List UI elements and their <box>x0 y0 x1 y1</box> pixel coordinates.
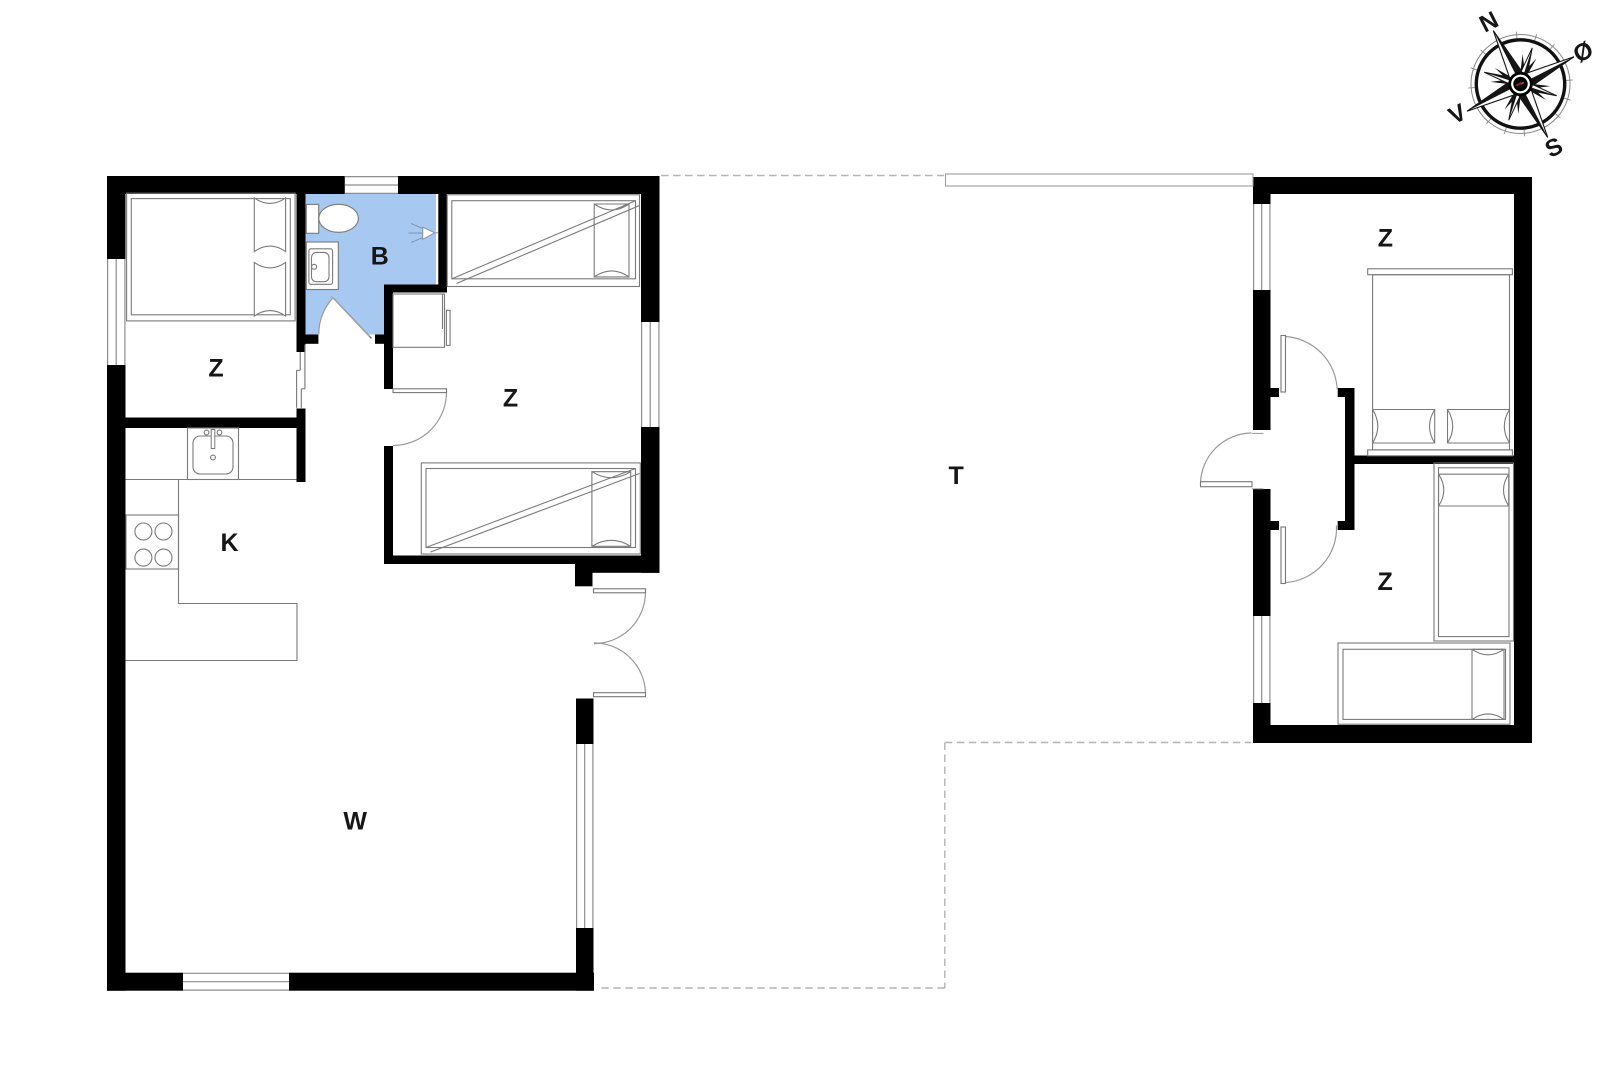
svg-text:K: K <box>220 529 238 557</box>
svg-text:Z: Z <box>1378 224 1393 252</box>
svg-text:W: W <box>343 808 367 836</box>
svg-text:B: B <box>371 243 389 271</box>
svg-text:T: T <box>949 462 964 490</box>
svg-text:Z: Z <box>1378 568 1393 596</box>
svg-text:Z: Z <box>503 385 518 413</box>
svg-text:Z: Z <box>208 354 223 382</box>
